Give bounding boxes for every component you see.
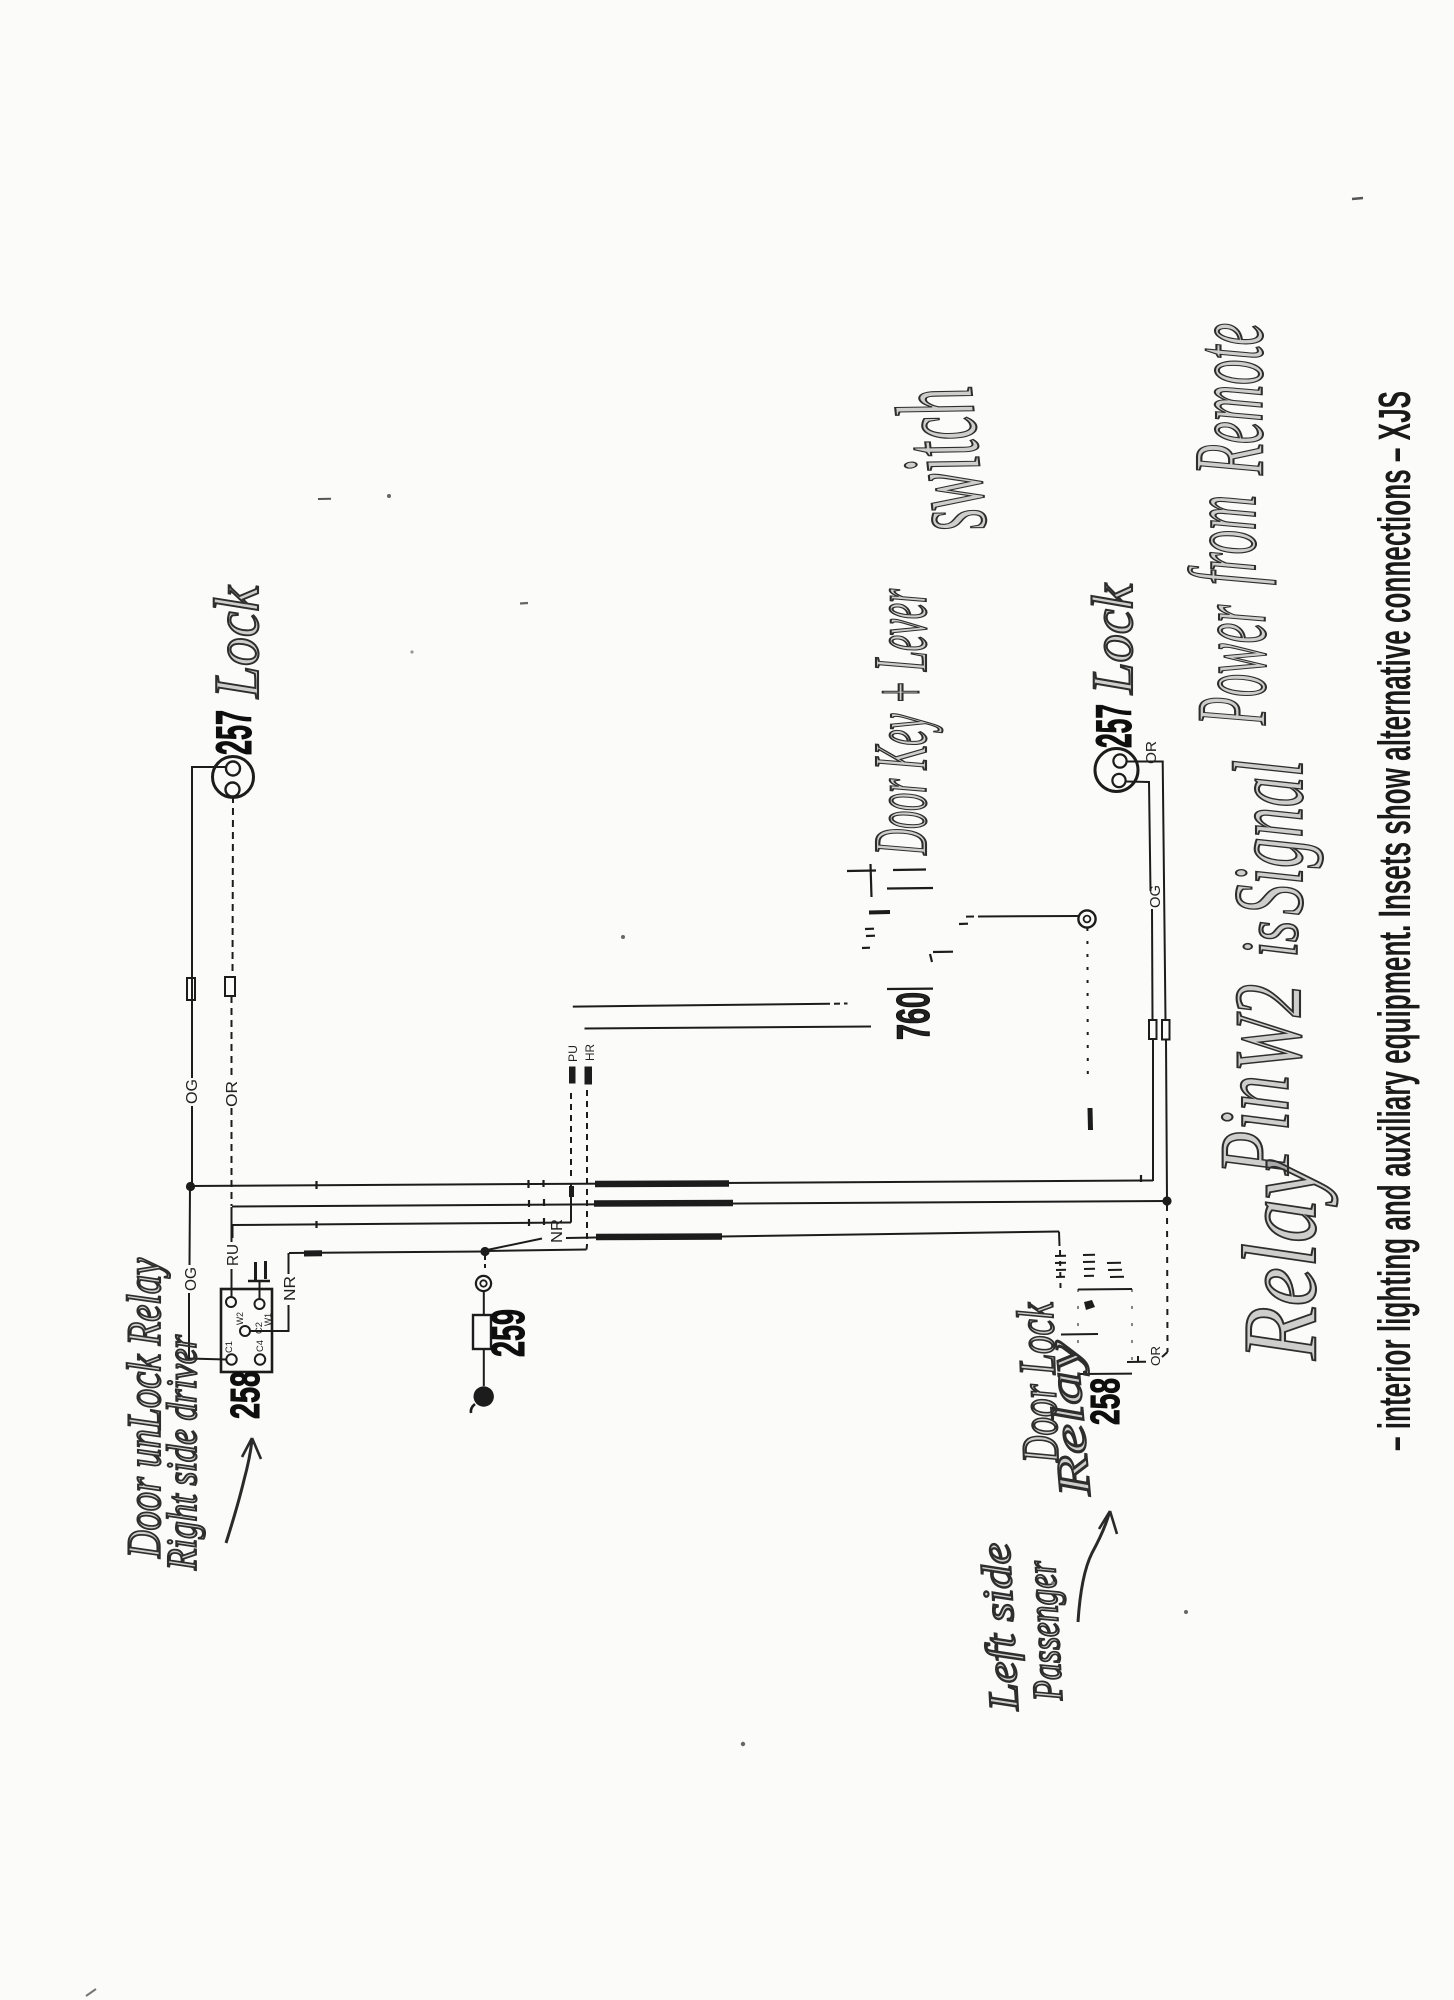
svg-text:NR: NR [549, 1219, 566, 1243]
svg-text:switch: switch [872, 382, 1010, 538]
svg-text:RU: RU [225, 1244, 242, 1266]
svg-text:from: from [1170, 495, 1276, 585]
svg-text:Remote: Remote [1173, 323, 1284, 476]
svg-text:NR: NR [282, 1276, 299, 1301]
svg-text:Right side driver: Right side driver [160, 1334, 206, 1570]
svg-text:OG: OG [1147, 885, 1164, 908]
svg-text:Signal: Signal [1213, 760, 1324, 915]
svg-text:W1: W1 [263, 1313, 273, 1326]
svg-text:Passenger: Passenger [1019, 1559, 1072, 1703]
svg-text:Relay: Relay [1221, 1160, 1338, 1361]
svg-text:Power: Power [1176, 605, 1287, 726]
svg-text:257: 257 [206, 710, 262, 755]
svg-text:760: 760 [887, 992, 939, 1040]
svg-text:C2: C2 [254, 1322, 264, 1334]
svg-text:OG: OG [184, 1079, 201, 1104]
svg-text:W2: W2 [235, 1312, 245, 1325]
svg-text:OG: OG [183, 1267, 200, 1291]
svg-text:PU: PU [566, 1045, 580, 1062]
svg-text:W2: W2 [1215, 984, 1321, 1072]
svg-text:OR: OR [1143, 741, 1160, 764]
svg-text:OR: OR [224, 1081, 241, 1107]
svg-text:Door Key + Lever: Door Key + Lever [859, 589, 943, 856]
svg-text:Pin: Pin [1199, 1075, 1310, 1176]
svg-text:Lock: Lock [201, 585, 272, 699]
svg-text:is: is [1227, 921, 1315, 957]
svg-text:– interior lighting and auxili: – interior lighting and auxiliary equipm… [1369, 391, 1420, 1451]
svg-text:OR: OR [1148, 1346, 1163, 1366]
svg-text:HR: HR [583, 1044, 597, 1061]
svg-text:Lock: Lock [1080, 583, 1145, 695]
svg-text:C1: C1 [224, 1341, 234, 1353]
svg-text:258: 258 [222, 1371, 268, 1419]
svg-text:259: 259 [482, 1309, 534, 1357]
svg-text:Relay: Relay [1037, 1339, 1101, 1500]
svg-text:257: 257 [1086, 704, 1142, 748]
svg-text:C4: C4 [255, 1340, 265, 1352]
